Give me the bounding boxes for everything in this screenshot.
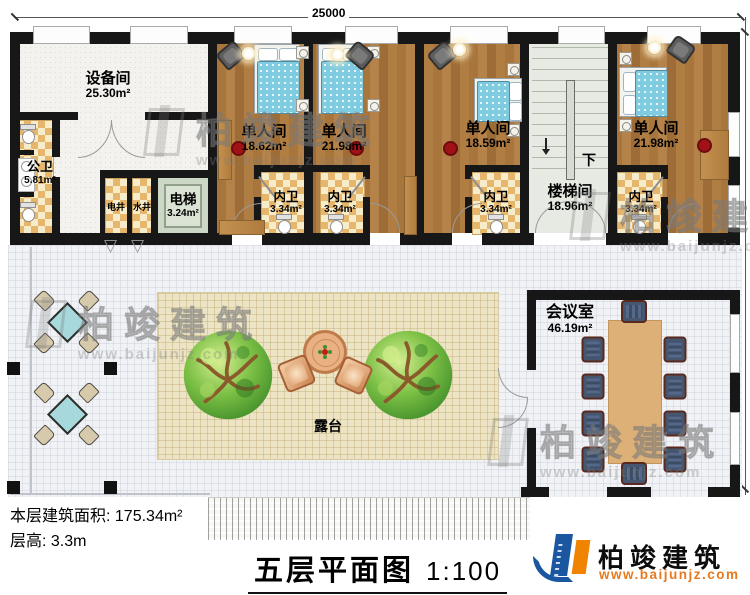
wall [465,165,520,172]
wall [730,290,740,314]
wall [730,373,740,412]
wall [728,32,740,112]
room-label-elec-shaft: 电井 [107,202,125,212]
watermark-logo-icon [25,300,67,348]
room-label-bath3: 内卫3.34m² [480,190,512,216]
wall [482,233,534,245]
wall [520,42,529,233]
dimension-line-top [14,17,742,18]
window [730,412,740,465]
cabinet [219,220,265,235]
wall [527,290,536,370]
wall [730,465,740,497]
wall [527,290,740,300]
room-label-single3: 单人间18.59m² [465,120,510,151]
window [130,26,188,44]
wall [728,157,740,185]
ceiling-light-icon [647,40,662,55]
room-label-bath1: 内卫3.34m² [270,190,302,216]
conference-chair [664,374,687,400]
wall [10,233,232,245]
desk [404,176,417,235]
ceiling-light-icon [452,42,467,57]
wall [18,192,34,197]
window [345,26,398,44]
window [728,112,740,157]
terrace-railing-left [30,247,32,494]
room-label-terrace: 露台 [314,418,342,434]
waste-bin [443,141,458,156]
room-label-elevator: 电梯3.24m² [167,192,199,219]
brand-logo-icon [572,540,591,574]
bed [474,78,522,122]
conference-chair [582,337,605,363]
watermark-logo-icon [143,108,185,156]
nightstand [619,119,632,132]
nightstand [507,63,520,76]
flower-centerpiece-icon [322,349,328,355]
column [104,481,117,494]
room-label-bath2: 内卫3.34m² [324,190,356,216]
wall [521,487,549,497]
watermark-logo-icon [569,192,611,240]
room-label-water-shaft: 水井 [133,202,151,212]
watermark: 柏竣建筑www.baijunjz.com [78,296,262,363]
room-label-meeting: 会议室46.19m² [546,304,594,336]
window [730,314,740,373]
watermark: 柏竣建筑www.baijunjz.com [540,414,724,481]
drawing-title: 五层平面图1:100 [248,547,507,594]
wall [18,150,34,155]
floor-plan-canvas: 25000 17500 [0,0,750,595]
toilet-icon [488,214,504,234]
ceiling-light-icon [330,47,345,62]
floor-area-info: 本层建筑面积: 175.34m² [10,502,183,526]
conference-chair [664,337,687,363]
wall [52,120,60,157]
wall [100,178,105,233]
wall [10,32,20,245]
wall [151,178,158,233]
window [234,26,292,44]
wall [127,178,132,233]
wall [607,487,651,497]
column [7,362,20,375]
dimension-width: 25000 [308,6,349,20]
stair-direction-arrow [545,138,547,152]
floor-height-info: 层高: 3.3m [10,527,86,551]
paved-strip [208,497,530,540]
toilet-icon [20,124,36,144]
waste-bin [697,138,712,153]
stair-direction-label: 下 [582,152,596,168]
conference-chair [582,374,605,400]
watermark: 柏竣建筑www.baijunjz.com [620,188,750,255]
bed [619,67,667,117]
dimension-line-right [745,17,746,495]
stair-rail [566,80,575,180]
window [33,26,90,44]
wall [10,112,78,120]
window [558,26,605,44]
nightstand [296,46,309,59]
brand-url: www.baijunjz.com [599,567,740,582]
watermark: 柏竣建筑www.baijunjz.com [196,102,380,169]
toilet-icon [328,214,344,234]
ceiling-light-icon [241,46,256,61]
conference-chair [621,300,647,323]
room-label-public-wc: 公卫5.81m² [24,160,56,186]
toilet-icon [20,202,36,222]
column [7,481,20,494]
room-label-single4: 单人间21.98m² [633,120,678,151]
room-label-equipment: 设备间25.30m² [85,70,130,101]
wall [100,170,210,178]
wall [363,197,370,233]
nightstand [619,52,632,65]
shaft-door-mark: ▽ [131,237,144,254]
column [104,362,117,375]
watermark-logo-icon [487,418,529,466]
toilet-icon [276,214,292,234]
wall [262,233,370,245]
tree-icon [361,328,455,422]
shaft-door-mark: ▽ [104,237,117,254]
